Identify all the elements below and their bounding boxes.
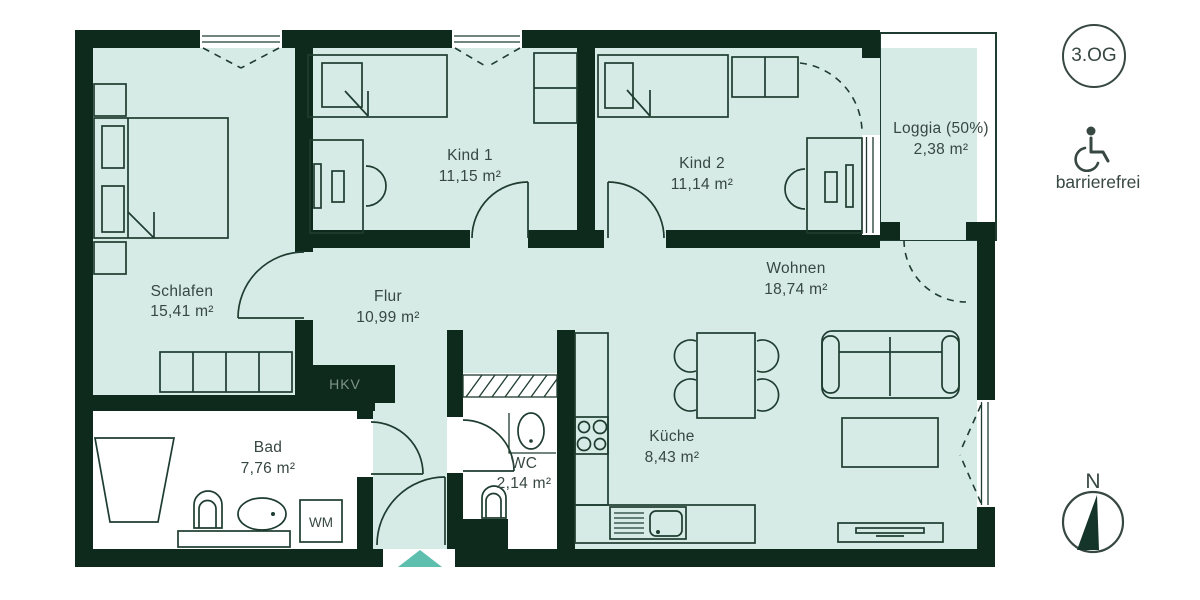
door-gap-kind2 (604, 230, 666, 248)
room-area: 11,15 m² (439, 168, 501, 185)
room-name: Küche (649, 428, 694, 445)
wall-bad-top (75, 395, 375, 411)
room-name: Kind 2 (679, 155, 725, 172)
wall-bottom (75, 549, 995, 567)
floor-level-badge: 3.OG (1062, 24, 1126, 88)
wall-kitchen-left (557, 330, 575, 567)
hkv-label: HKV (329, 376, 361, 392)
room-area: 2,14 m² (497, 475, 552, 492)
room-name: Kind 1 (447, 147, 493, 164)
wall-left (75, 30, 93, 567)
door-gap-kind1 (470, 230, 528, 248)
door-gap-wc (447, 417, 463, 473)
wm-label: WM (309, 515, 333, 530)
room-name: Loggia (50%) (893, 120, 989, 137)
door-gap-schlafen (295, 252, 313, 320)
room-name: Bad (254, 439, 282, 456)
room-area: 15,41 m² (150, 303, 214, 320)
wall-kind-divider (577, 30, 595, 248)
room-area: 8,43 m² (645, 449, 700, 466)
accessibility-label: barrierefrei (1036, 172, 1160, 193)
room-area: 18,74 m² (764, 281, 828, 298)
window-gap-schlafen (200, 30, 282, 48)
door-gap-loggia-kind2 (862, 58, 880, 135)
french-window-gap (977, 400, 995, 507)
room-name: Wohnen (766, 260, 825, 277)
wall-wc-duct (463, 519, 508, 549)
room-name: WC (511, 455, 537, 472)
window-gap-loggia (862, 135, 880, 235)
compass-north-label: N (1085, 470, 1100, 493)
door-gap-loggia-wohnen (900, 222, 966, 240)
wheelchair-icon (1072, 122, 1120, 172)
door-gap-bad (357, 419, 373, 477)
floor-level-text: 3.OG (1071, 45, 1116, 67)
room-area: 7,76 m² (241, 460, 296, 477)
room-area: 11,14 m² (671, 176, 733, 193)
room-area: 10,99 m² (356, 309, 420, 326)
compass: N (1052, 460, 1134, 560)
window-gap-kind1 (452, 30, 522, 48)
room-name: Flur (374, 288, 402, 305)
floor-plan-svg: Schlafen 15,41 m² Kind 1 11,15 m² Kind 2… (0, 0, 1200, 600)
room-name: Schlafen (151, 283, 214, 300)
floor-plan-page: Schlafen 15,41 m² Kind 1 11,15 m² Kind 2… (0, 0, 1200, 600)
room-area: 2,38 m² (914, 141, 969, 158)
compass-needle-icon (1077, 495, 1099, 550)
